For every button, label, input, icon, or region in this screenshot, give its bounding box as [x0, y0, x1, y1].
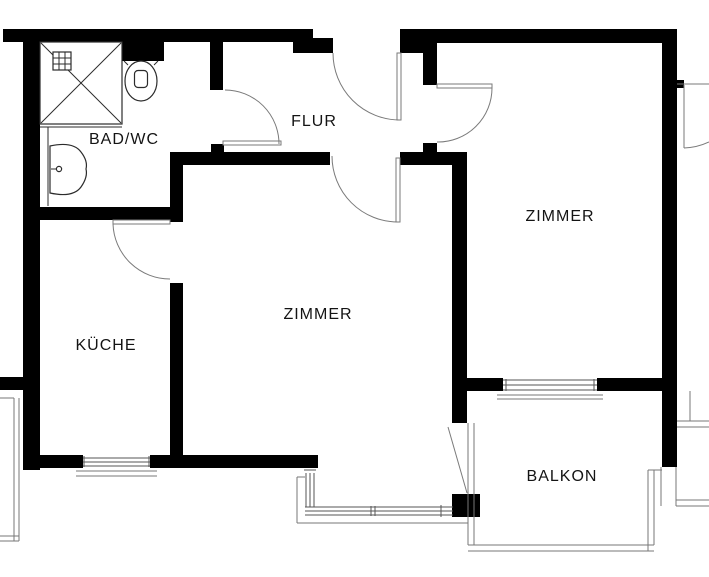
- room-label-flur: FLUR: [291, 113, 337, 130]
- wall-top-right: [428, 29, 677, 43]
- kitchen-window: [76, 456, 157, 476]
- bath-door: [223, 90, 281, 145]
- zimmer-right-door-leaf: [437, 84, 492, 88]
- wall-right-exterior: [662, 29, 677, 467]
- neighbor-balcony-left: [0, 398, 19, 541]
- bath-door-leaf: [223, 141, 281, 145]
- windows: [76, 379, 603, 523]
- fixtures: [40, 42, 158, 206]
- zimmer-right-door-arc: [437, 88, 492, 142]
- entrance-door-arc: [333, 53, 400, 120]
- wall-left-exterior: [23, 42, 40, 470]
- zimmer-middle-door: [332, 156, 400, 222]
- toilet-bowl-inner: [135, 71, 148, 88]
- wall-kitchen-zimmer-lower: [170, 283, 183, 455]
- room-label-bad-wc: BAD/WC: [89, 131, 159, 148]
- sink-faucet: [56, 166, 61, 171]
- toilet-icon: [124, 61, 158, 101]
- wall-top-left: [3, 29, 313, 42]
- wall-bath-kitchen: [40, 207, 170, 220]
- kitchen-door-leaf: [113, 220, 170, 224]
- floor-plan: BAD/WC FLUR ZIMMER ZIMMER KÜCHE BALKON: [0, 0, 709, 577]
- neighbor-door: [677, 84, 709, 148]
- room-label-zimmer-right: ZIMMER: [525, 208, 594, 225]
- shower-drain: [53, 52, 71, 70]
- bay-window: [297, 470, 468, 523]
- entrance-door: [333, 53, 401, 120]
- balcony-railing: [468, 423, 662, 551]
- kitchen-door-arc: [113, 224, 170, 279]
- room-label-kueche: KÜCHE: [75, 336, 136, 354]
- bath-door-arc: [225, 90, 279, 144]
- entrance-door-leaf: [397, 53, 401, 120]
- wall-bay-corner-block: [452, 494, 480, 517]
- sink-icon: [50, 144, 86, 194]
- wall-left-stub: [0, 377, 23, 390]
- wall-zimmer-bottom: [150, 455, 318, 468]
- room-labels: BAD/WC FLUR ZIMMER ZIMMER KÜCHE BALKON: [75, 113, 597, 485]
- balcony-window: [497, 379, 603, 399]
- toilet-hinge: [124, 61, 128, 65]
- wall-flur-zimmer-upper: [423, 42, 437, 85]
- wall-flur-zimmer-stub: [423, 143, 437, 152]
- balcony-door-leaf: [448, 427, 467, 493]
- wall-bath-flur-stub: [211, 144, 224, 153]
- wall-zimmer-balkon-left: [452, 378, 503, 391]
- wall-entrance-left-jamb: [293, 38, 333, 53]
- wall-bath-flur-upper: [210, 42, 223, 90]
- wall-zimmer-balkon-right: [597, 378, 677, 391]
- zimmer-middle-door-leaf: [396, 158, 400, 222]
- wall-flur-bottom-left: [170, 152, 330, 165]
- doors: [113, 53, 709, 493]
- room-label-zimmer-middle: ZIMMER: [283, 306, 352, 323]
- room-label-balkon: BALKON: [527, 468, 598, 485]
- zimmer-middle-door-arc: [332, 156, 398, 222]
- floor-plan-drawing: BAD/WC FLUR ZIMMER ZIMMER KÜCHE BALKON: [0, 0, 709, 577]
- toilet-hinge: [154, 61, 158, 65]
- wall-kitchen-zimmer-upper: [170, 152, 183, 222]
- neighbor-door-arc: [684, 142, 709, 148]
- zimmer-right-door: [437, 84, 492, 142]
- wall-kitchen-bottom: [23, 455, 83, 468]
- kitchen-door: [113, 220, 170, 279]
